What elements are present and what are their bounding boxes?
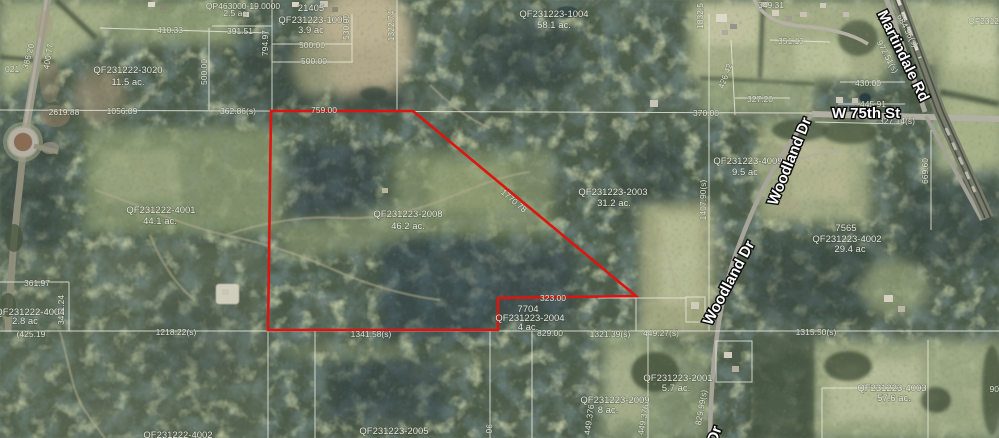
svg-text:3411.24: 3411.24 [56, 295, 66, 325]
svg-text:5.7 ac.: 5.7 ac. [662, 383, 691, 394]
svg-text:2619.88: 2619.88 [49, 107, 80, 117]
svg-text:1832.5: 1832.5 [695, 3, 705, 29]
svg-text:21405: 21405 [298, 3, 324, 14]
svg-text:QF231222-3020: QF231222-3020 [93, 65, 162, 76]
svg-text:7565: 7565 [835, 223, 856, 234]
svg-text:829.00: 829.00 [537, 328, 563, 338]
svg-text:323.00: 323.00 [540, 293, 566, 303]
svg-text:QF2312: QF2312 [968, 16, 999, 26]
svg-text:794.97: 794.97 [260, 30, 270, 56]
svg-text:29.4 ac: 29.4 ac [834, 244, 865, 255]
svg-text:410.33: 410.33 [157, 25, 183, 35]
svg-text:44.1 ac.: 44.1 ac. [143, 216, 177, 227]
svg-text:(425.19: (425.19 [17, 329, 46, 339]
svg-text:370.00: 370.00 [693, 108, 719, 118]
svg-text:362.86(s): 362.86(s) [220, 106, 256, 116]
svg-text:11.5 ac.: 11.5 ac. [111, 77, 144, 88]
svg-text:351.13: 351.13 [778, 36, 804, 46]
svg-text:31.2 ac.: 31.2 ac. [597, 198, 631, 209]
svg-text:2.5 ac: 2.5 ac [223, 8, 247, 18]
svg-text:8 ac.: 8 ac. [598, 405, 619, 416]
svg-text:QF231223-2005: QF231223-2005 [359, 426, 428, 437]
svg-text:349.31: 349.31 [758, 0, 784, 10]
svg-text:1218.22(s): 1218.22(s) [156, 327, 197, 337]
svg-text:46.2 ac.: 46.2 ac. [391, 221, 425, 232]
svg-text:1341.58(s): 1341.58(s) [351, 329, 392, 339]
svg-text:QF231223-4009: QF231223-4009 [713, 156, 782, 167]
svg-text:430.00: 430.00 [855, 78, 881, 88]
svg-text:530.00: 530.00 [341, 14, 351, 40]
svg-text:327.20: 327.20 [747, 94, 773, 104]
svg-text:1322.74: 1322.74 [386, 10, 396, 41]
svg-text:449.27(s): 449.27(s) [643, 328, 679, 338]
svg-text:391.51: 391.51 [227, 26, 253, 36]
svg-text:W 75th St: W 75th St [832, 105, 900, 122]
svg-text:90: 90 [990, 384, 999, 394]
svg-text:QF231222-4002: QF231222-4002 [143, 430, 212, 438]
svg-text:1056.09: 1056.09 [107, 106, 138, 116]
svg-text:500.00: 500.00 [301, 56, 327, 66]
svg-text:2.8 ac: 2.8 ac [12, 316, 38, 327]
svg-text:58.1 ac.: 58.1 ac. [537, 20, 571, 31]
svg-text:3.9 ac: 3.9 ac [298, 25, 324, 36]
svg-text:QF231223-1004: QF231223-1004 [519, 9, 588, 20]
svg-text:500.00: 500.00 [299, 40, 325, 50]
svg-text:QF231223-2003: QF231223-2003 [578, 187, 647, 198]
svg-text:021: 021 [5, 64, 19, 74]
svg-text:1315.50(s): 1315.50(s) [796, 327, 837, 337]
svg-text:QF231223-2008: QF231223-2008 [373, 209, 442, 220]
svg-text:4 ac.: 4 ac. [518, 322, 539, 333]
svg-text:500.00: 500.00 [199, 59, 209, 85]
svg-text:9.5 ac: 9.5 ac [732, 167, 758, 178]
svg-text:759.00: 759.00 [311, 105, 337, 115]
svg-text:QF231222-4001: QF231222-4001 [126, 205, 195, 216]
svg-text:57.6 ac.: 57.6 ac. [877, 393, 911, 404]
svg-text:361.97: 361.97 [24, 278, 50, 288]
svg-text:06: 06 [484, 423, 495, 434]
svg-text:669.60: 669.60 [920, 158, 930, 184]
svg-text:1407.90(s): 1407.90(s) [698, 180, 708, 221]
svg-text:1321.39(s): 1321.39(s) [590, 329, 631, 339]
